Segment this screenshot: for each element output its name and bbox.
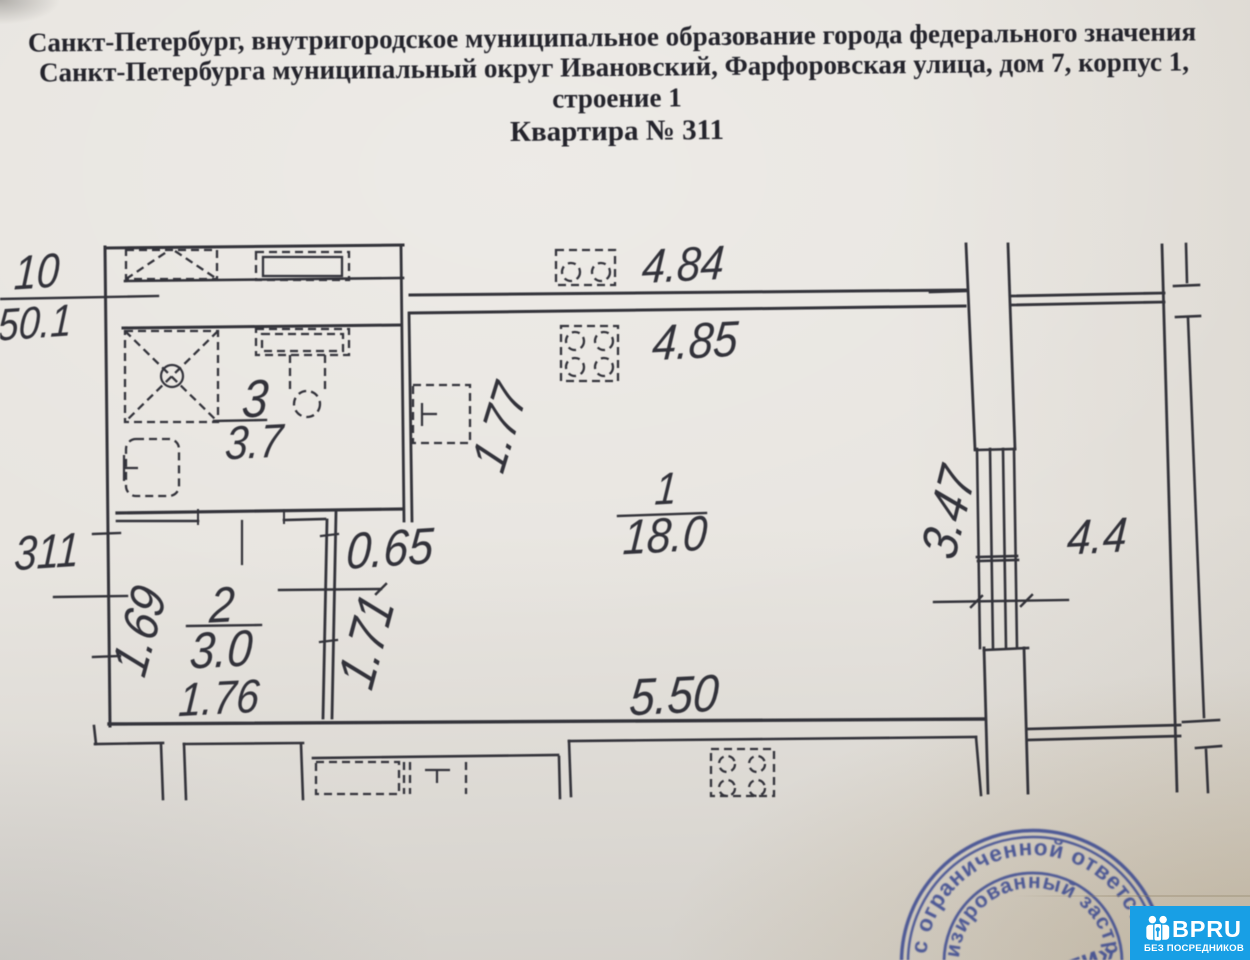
svg-text:18.0: 18.0 [621, 505, 709, 565]
svg-text:4.84: 4.84 [640, 235, 726, 293]
svg-text:311: 311 [13, 524, 80, 581]
svg-text:10: 10 [13, 244, 61, 300]
svg-text:1.76: 1.76 [177, 670, 261, 726]
svg-text:1.71: 1.71 [327, 586, 406, 696]
svg-text:50.1: 50.1 [0, 294, 73, 350]
svg-text:5.50: 5.50 [628, 664, 721, 727]
svg-text:4.85: 4.85 [650, 311, 740, 372]
svg-text:0.65: 0.65 [345, 517, 435, 581]
svg-text:3.47: 3.47 [910, 457, 987, 566]
svg-text:3.7: 3.7 [224, 415, 287, 470]
svg-text:Сити»: Сити» [1027, 936, 1120, 960]
svg-text:1.69: 1.69 [102, 578, 178, 684]
svg-text:4.4: 4.4 [1065, 507, 1129, 565]
svg-text:1.77: 1.77 [462, 374, 539, 480]
